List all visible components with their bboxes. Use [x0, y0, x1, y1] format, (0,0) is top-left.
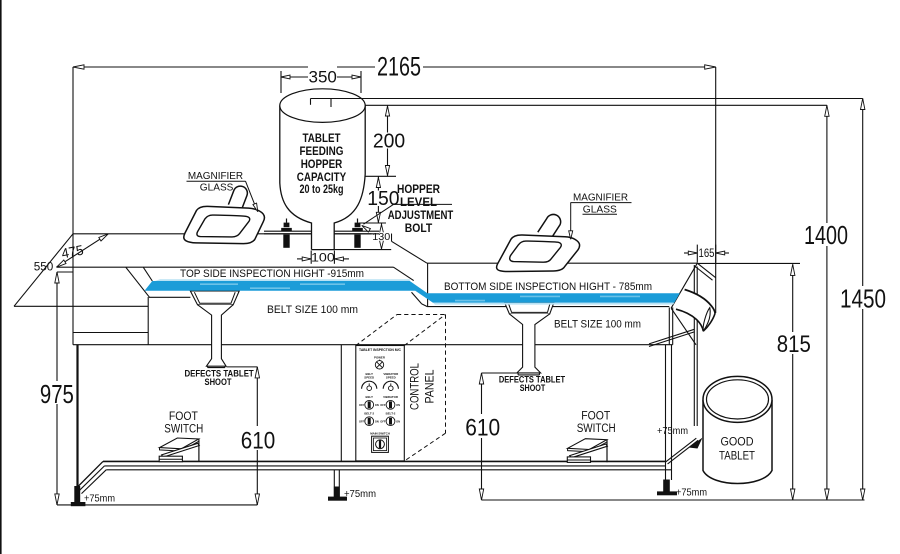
svg-text:+75mm: +75mm: [344, 488, 376, 500]
svg-text:SWITCH: SWITCH: [164, 423, 203, 435]
svg-text:HOPPER: HOPPER: [397, 182, 440, 196]
svg-text:BELT-2: BELT-2: [364, 412, 374, 416]
svg-text:SHOOT: SHOOT: [205, 377, 232, 387]
svg-text:200: 200: [373, 130, 405, 152]
svg-text:GOOD: GOOD: [721, 437, 754, 449]
svg-text:BOLT: BOLT: [405, 221, 433, 235]
svg-text:1450: 1450: [840, 285, 886, 313]
svg-text:MAGNIFIER: MAGNIFIER: [573, 193, 628, 204]
svg-text:FOOT: FOOT: [169, 411, 198, 423]
svg-text:+75mm: +75mm: [84, 493, 115, 505]
svg-text:2165: 2165: [377, 52, 421, 82]
svg-text:815: 815: [777, 331, 811, 358]
svg-text:BELT SIZE 100 mm: BELT SIZE 100 mm: [554, 318, 641, 330]
svg-text:TABLET INSPECTION M/C: TABLET INSPECTION M/C: [359, 348, 401, 352]
svg-text:VIBRATOR: VIBRATOR: [383, 395, 399, 399]
svg-text:ON: ON: [396, 419, 400, 423]
svg-text:BELT-2: BELT-2: [386, 412, 396, 416]
svg-text:OFF: OFF: [380, 419, 386, 423]
svg-text:1400: 1400: [804, 222, 848, 250]
svg-text:+75mm: +75mm: [657, 425, 688, 437]
svg-text:610: 610: [241, 427, 276, 454]
svg-text:150: 150: [367, 188, 399, 210]
svg-text:SPEED: SPEED: [364, 376, 374, 380]
svg-text:FEEDING: FEEDING: [300, 144, 344, 158]
svg-text:LEVEL: LEVEL: [400, 195, 437, 209]
svg-text:FOOT: FOOT: [581, 411, 610, 423]
svg-text:SHOOT: SHOOT: [520, 383, 546, 393]
svg-text:TABLET: TABLET: [303, 131, 342, 145]
svg-text:610: 610: [465, 414, 500, 441]
svg-text:OFF: OFF: [380, 403, 386, 407]
svg-text:SWITCH: SWITCH: [577, 423, 616, 435]
svg-text:165: 165: [699, 248, 715, 260]
svg-text:GLASS: GLASS: [200, 183, 234, 194]
svg-text:ADJUSTMENT: ADJUSTMENT: [388, 208, 454, 222]
svg-text:20 to 25kg: 20 to 25kg: [300, 182, 344, 196]
svg-text:BELT: BELT: [366, 395, 374, 399]
svg-text:130: 130: [372, 231, 390, 243]
svg-text:350: 350: [309, 67, 337, 86]
svg-text:HOPPER: HOPPER: [301, 157, 343, 171]
svg-text:BOTTOM SIDE INSPECTION HIGHT -: BOTTOM SIDE INSPECTION HIGHT - 785mm: [444, 281, 652, 293]
svg-text:+75mm: +75mm: [676, 487, 707, 499]
svg-text:TABLET: TABLET: [719, 451, 755, 463]
svg-text:975: 975: [40, 381, 74, 409]
svg-text:TOP SIDE INSPECTION HIGHT -915: TOP SIDE INSPECTION HIGHT -915mm: [180, 268, 364, 280]
svg-text:BELT SIZE 100 mm: BELT SIZE 100 mm: [267, 304, 358, 316]
svg-text:PANEL: PANEL: [425, 369, 437, 404]
svg-text:SPEED: SPEED: [386, 376, 396, 380]
svg-text:MAGNIFIER: MAGNIFIER: [188, 171, 244, 182]
svg-text:OFF: OFF: [359, 403, 365, 407]
svg-text:OFF: OFF: [359, 419, 365, 423]
svg-text:100: 100: [311, 251, 335, 265]
svg-text:ON: ON: [396, 403, 400, 407]
svg-text:MAIN SWITCH: MAIN SWITCH: [370, 432, 390, 436]
svg-text:ON: ON: [375, 403, 379, 407]
svg-text:550: 550: [34, 260, 54, 274]
svg-text:POWER: POWER: [374, 356, 386, 360]
svg-text:ON: ON: [375, 419, 379, 423]
svg-text:CONTROL: CONTROL: [409, 363, 421, 410]
